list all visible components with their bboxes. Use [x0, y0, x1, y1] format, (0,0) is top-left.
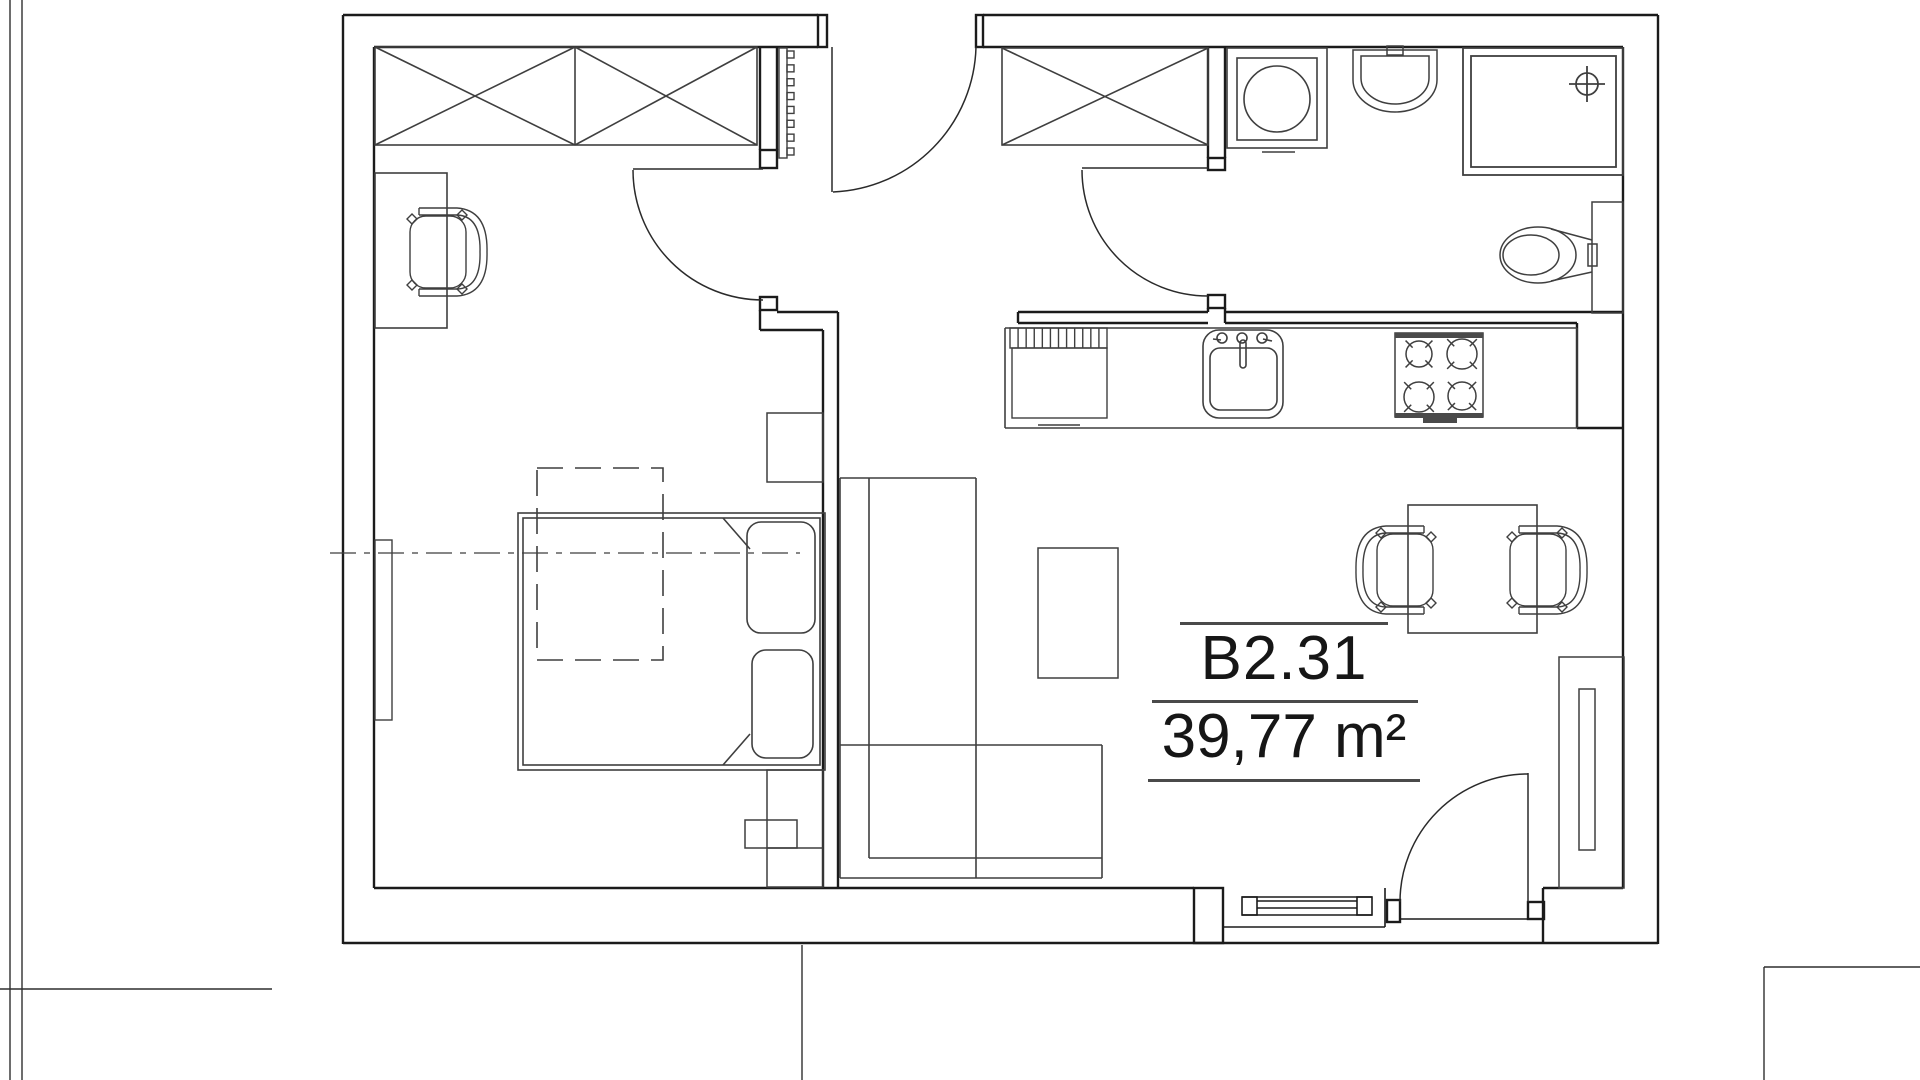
toilet [1500, 202, 1623, 313]
radiator-bedroom [375, 540, 392, 720]
chair-dining-left [1356, 526, 1436, 614]
context-lines [0, 0, 1920, 1080]
floorplan-page: B2.31 39,77 m² [0, 0, 1920, 1080]
coffee-table [1038, 548, 1118, 678]
kitchen-cabinet [1010, 328, 1107, 425]
desk [375, 173, 447, 328]
nightstand-top [767, 413, 823, 482]
door-bedroom [633, 169, 763, 300]
chair-dining-right [1507, 526, 1587, 614]
floorplan-drawing [0, 0, 1920, 1080]
dining-table [1408, 505, 1537, 633]
door-bathroom [1082, 168, 1208, 296]
nightstand-bottom [745, 770, 823, 887]
stove [1395, 333, 1483, 423]
door-balcony [1400, 773, 1528, 902]
shower [1463, 48, 1623, 175]
door-entry [832, 47, 976, 192]
closet-hall [1002, 48, 1208, 145]
bed [518, 513, 825, 770]
radiator-living [1559, 657, 1624, 888]
washing-machine [1227, 48, 1327, 152]
walls [343, 15, 1658, 944]
kitchen-sink [1203, 330, 1283, 418]
radiator-hall [779, 48, 794, 158]
wardrobe-bedroom [375, 47, 757, 145]
chair-dining-right-symbol [1507, 526, 1587, 614]
window-living [1223, 888, 1528, 927]
chair-dining-left-symbol [1356, 526, 1436, 614]
washbasin [1353, 46, 1437, 112]
ceiling-void-dashed [537, 468, 663, 660]
